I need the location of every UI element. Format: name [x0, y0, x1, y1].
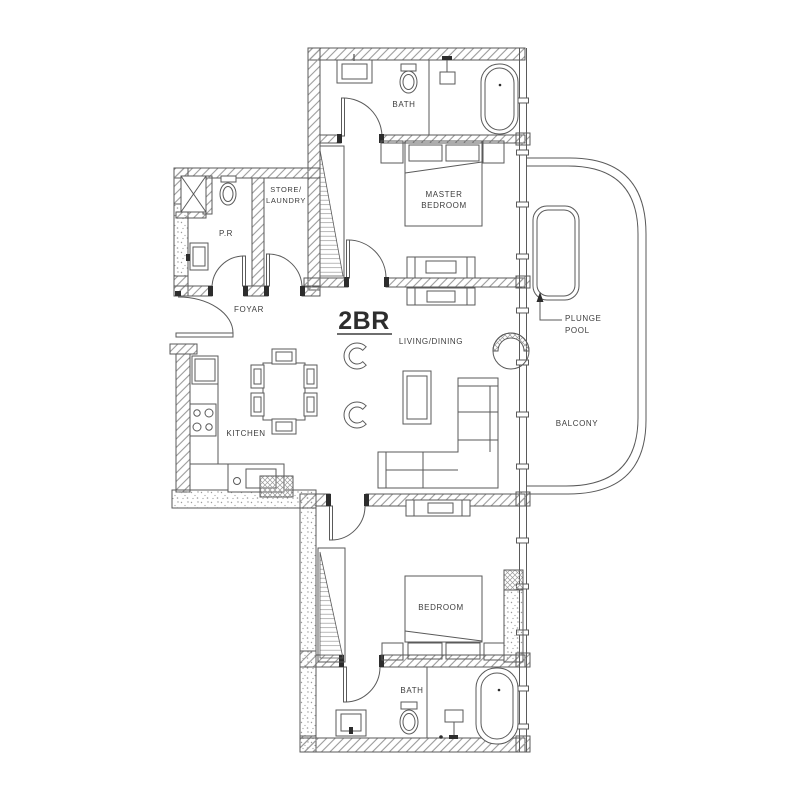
label-kitchen: KITCHEN [226, 429, 265, 438]
wall-segment-stone [172, 490, 316, 508]
wall-segment [516, 736, 530, 752]
door-leaf [344, 667, 347, 702]
door-arc [348, 240, 386, 278]
label-foyer: FOYAR [234, 305, 264, 314]
coffee-table [403, 371, 431, 424]
wardrobe-wedge [320, 146, 344, 278]
shaft-x-box [181, 176, 206, 212]
label-powder-room: P.R [219, 229, 233, 238]
dresser [407, 257, 475, 278]
tv-console [406, 500, 470, 516]
sink [186, 243, 208, 270]
bathtub [476, 668, 518, 744]
nightstand [381, 141, 403, 163]
wall-segment [516, 133, 530, 145]
armchair [344, 402, 366, 428]
fridge [192, 356, 218, 384]
dining-chair [251, 393, 264, 416]
bed [405, 576, 482, 659]
label-master-bedroom: MASTER [426, 190, 463, 199]
door-leaf [347, 240, 350, 278]
wall-segment [252, 178, 264, 286]
living-room [344, 333, 529, 488]
entry-door-leaf [176, 333, 233, 337]
kitchen-sink [228, 464, 293, 497]
wall-segment-stone [300, 494, 316, 752]
wall-segment [176, 354, 190, 492]
plunge-pool [533, 206, 579, 320]
walls [170, 48, 530, 752]
door-arc [345, 667, 380, 702]
toilet [400, 702, 418, 734]
label-living-dining: LIVING/DINING [399, 337, 463, 346]
wall-segment [516, 276, 530, 288]
dining-chair [304, 365, 317, 388]
door-leaf [330, 506, 333, 540]
dining-chair [304, 393, 317, 416]
door-arc [212, 256, 244, 288]
stove [190, 404, 216, 436]
wardrobe [504, 570, 523, 662]
door-leaf [342, 98, 345, 136]
dining-table [251, 349, 317, 434]
wall-segment [300, 651, 316, 667]
leader-line [540, 300, 562, 320]
bath-top [337, 54, 518, 135]
door-leaf [243, 256, 246, 286]
label-balcony: BALCONY [556, 419, 598, 428]
wall-segment [386, 278, 525, 287]
bath-bottom [336, 667, 518, 744]
door-arc [268, 254, 302, 288]
kitchen [190, 349, 317, 497]
label-store-laundry: LAUNDRY [266, 196, 306, 205]
nightstand [483, 141, 504, 163]
label-store-laundry: STORE/ [270, 185, 302, 194]
label-master-bedroom: BEDROOM [421, 201, 467, 210]
plant [493, 333, 529, 369]
armchair [344, 343, 366, 369]
dining-chair [251, 365, 264, 388]
pillow [409, 145, 442, 161]
wall-segment [176, 212, 206, 218]
pillow [446, 145, 479, 161]
label-bedroom: BEDROOM [418, 603, 464, 612]
floor-plan: BATH STORE/ LAUNDRY P.R MASTER BEDROOM F… [0, 0, 800, 800]
bedroom-2 [318, 500, 523, 662]
bathtub [481, 64, 518, 134]
toilet [220, 176, 236, 205]
toilet [400, 64, 417, 93]
shower-head [439, 710, 463, 739]
sink [336, 710, 366, 736]
dining-chair [272, 349, 296, 364]
door-arc [331, 506, 365, 540]
label-bath-bottom: BATH [400, 686, 423, 695]
label-bath-top: BATH [392, 100, 415, 109]
wardrobe-wedge [318, 548, 345, 662]
sideboard [407, 288, 475, 305]
dining-chair [272, 419, 296, 434]
wall-segment [308, 48, 525, 60]
unit-title: 2BR [338, 307, 390, 335]
appliance [260, 476, 293, 497]
wall-segment [170, 344, 197, 354]
door-arc [343, 98, 382, 137]
bed-master [405, 141, 482, 226]
wall-segment [300, 494, 316, 508]
door-leaf [267, 254, 270, 286]
label-plunge-pool: PLUNGE [565, 314, 602, 323]
label-plunge-pool: POOL [565, 326, 590, 335]
entry-door-arc [178, 297, 233, 333]
sofa [378, 378, 498, 488]
floor-plan-page: BATH STORE/ LAUNDRY P.R MASTER BEDROOM F… [0, 0, 800, 800]
